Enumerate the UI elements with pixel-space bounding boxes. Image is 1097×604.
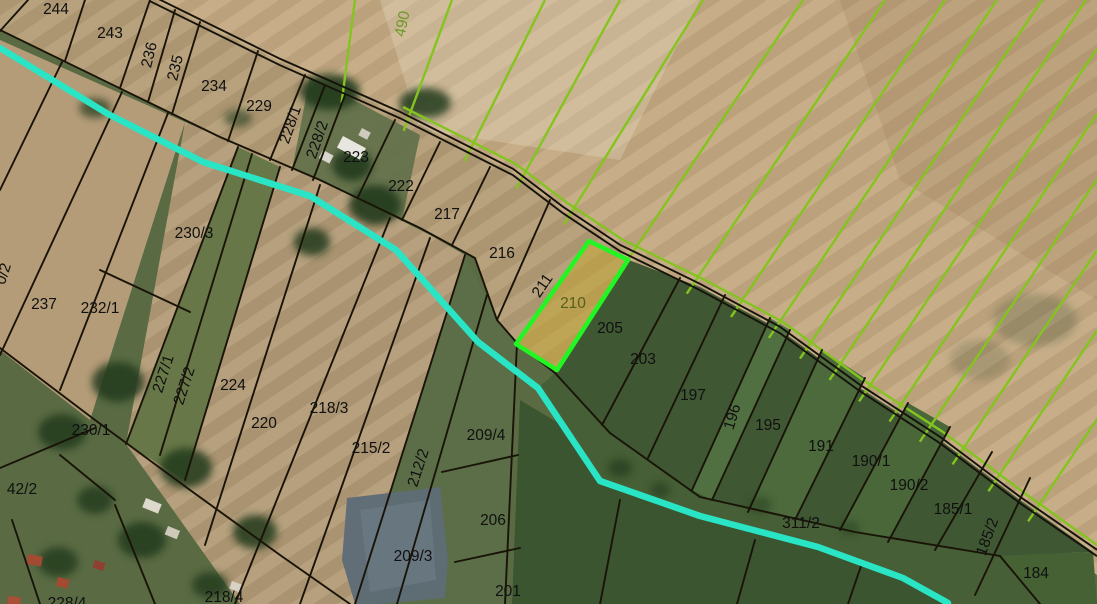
- parcel-label-223: 223: [343, 149, 369, 166]
- map-viewport[interactable]: 244243236235234229228/1228/2223222217216…: [0, 0, 1097, 604]
- parcel-label-228-4: 228/4: [48, 595, 87, 604]
- parcel-label-243: 243: [97, 25, 123, 42]
- parcel-label-206: 206: [480, 512, 506, 529]
- parcel-label-209-3: 209/3: [394, 548, 433, 565]
- parcel-label-191: 191: [808, 438, 834, 455]
- parcel-label-237: 237: [31, 296, 57, 313]
- parcel-label-184: 184: [1023, 565, 1049, 582]
- parcel-label-218-3: 218/3: [310, 400, 349, 417]
- parcel-label-215-2: 215/2: [352, 440, 391, 457]
- parcel-label-217: 217: [434, 206, 460, 223]
- parcel-label-230-1: 230/1: [72, 422, 111, 439]
- parcel-label-222: 222: [388, 178, 414, 195]
- parcel-label-42-2: 42/2: [7, 481, 37, 498]
- parcel-label-220: 220: [251, 415, 277, 432]
- parcel-label-234: 234: [201, 78, 227, 95]
- parcel-label-209-4: 209/4: [467, 427, 506, 444]
- cadastral-map-canvas[interactable]: 244243236235234229228/1228/2223222217216…: [0, 0, 1097, 604]
- parcel-label-210: 210: [560, 295, 586, 312]
- parcel-label-201: 201: [495, 583, 521, 600]
- parcel-label-232-1: 232/1: [81, 300, 120, 317]
- parcel-label-230-3: 230/3: [175, 225, 214, 242]
- parcel-label-205: 205: [597, 320, 623, 337]
- parcel-label-224: 224: [220, 377, 246, 394]
- parcel-label-218-4: 218/4: [205, 589, 244, 604]
- parcel-label-203: 203: [630, 351, 656, 368]
- parcel-label-216: 216: [489, 245, 515, 262]
- parcel-label-185-1: 185/1: [934, 501, 973, 518]
- parcel-label-229: 229: [246, 98, 272, 115]
- parcel-label-190-1: 190/1: [852, 453, 891, 470]
- parcel-label-311-2: 311/2: [782, 515, 820, 532]
- parcel-label-195: 195: [755, 417, 781, 434]
- parcel-label-190-2: 190/2: [890, 477, 929, 494]
- parcel-label-197: 197: [680, 387, 706, 404]
- parcel-label-244: 244: [43, 1, 69, 18]
